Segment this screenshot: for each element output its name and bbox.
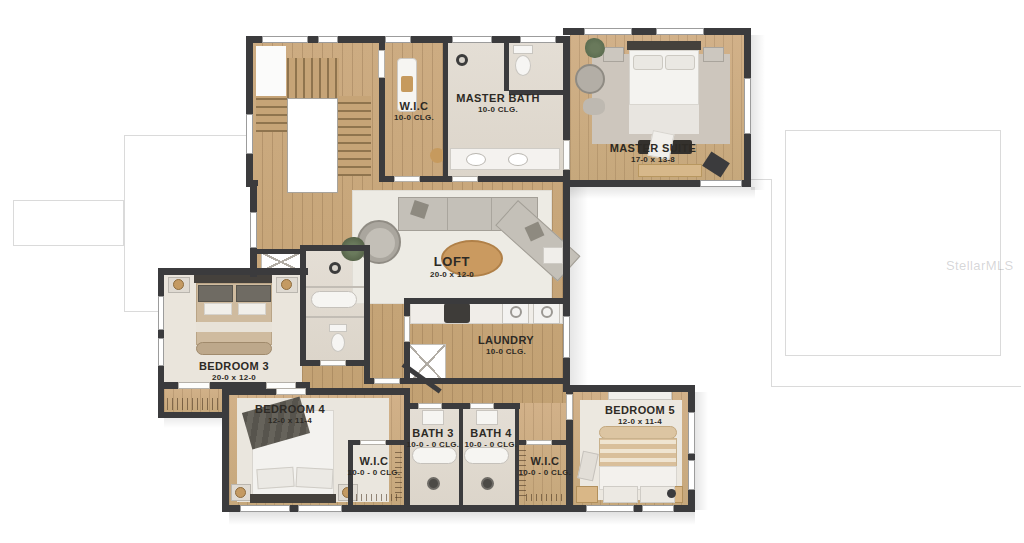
window [318,36,338,43]
room-label-laundry: LAUNDRY 10-0 CLG. [478,334,534,356]
stairs-icon [338,96,371,176]
room-dims: 10-0 - 0 CLG. [519,468,572,477]
window [586,505,634,512]
bed-blanket [629,104,699,134]
window [246,114,253,154]
pillow [296,467,334,489]
door [563,140,570,170]
sink-icon [422,410,444,425]
closet-rod [356,494,400,501]
window [700,180,742,187]
sink-icon [466,153,486,166]
toilet-icon [481,477,494,490]
room-dims: 10-0 CLG. [478,347,534,356]
footprint-outline-right-box [785,130,1001,356]
closet-rod [526,494,564,501]
footprint-outline-right-v [771,179,772,387]
washer-door [510,306,522,318]
door [374,378,400,384]
door [566,394,573,420]
sink-icon [508,153,528,166]
door [452,176,478,182]
window [452,36,492,43]
shadow [570,187,588,387]
room-name: BATH 4 [465,427,518,439]
armchair-icon [575,64,605,94]
room-dims: 10-0 CLG. [456,105,540,114]
window [563,316,570,358]
pillow [198,285,233,302]
room-label-loft: LOFT 20-0 x 12-0 [430,254,474,279]
room-name: MASTER SUITE [610,142,697,154]
room-dims: 12-0 x 11-4 [255,416,325,425]
lamp-icon [281,279,292,290]
room-dims: 20-0 x 12-0 [430,270,474,279]
wall [158,268,308,275]
bathtub-icon [311,291,357,308]
window [158,296,164,330]
stairs-icon [287,58,339,98]
shadow [695,392,708,510]
pillow [256,467,294,490]
wall [222,388,410,395]
shower-drain-icon [456,54,468,66]
room-dims: 10-0 - 0 CLG. [465,440,518,449]
toilet-icon [331,333,345,352]
room-dims: 20-0 x 12-0 [199,373,269,382]
wall [459,406,463,506]
window [250,212,257,248]
dryer-door [541,306,553,318]
door [320,360,346,366]
room-label-master-wic: W.I.C 10-0 CLG. [394,100,434,122]
ottoman [583,98,605,115]
wall [300,245,306,366]
wall [443,43,448,182]
shadow [751,35,765,190]
room-name: LOFT [430,254,474,269]
stairwell-void [287,98,338,193]
plant-icon [585,38,605,58]
window [240,505,290,512]
toilet-icon [329,324,347,332]
bathtub-icon [412,447,457,464]
room-label-wic-bed5: W.I.C 10-0 - 0 CLG. [519,455,572,477]
wall [158,412,228,418]
room-name: BEDROOM 5 [605,404,675,416]
sink-icon [476,410,498,425]
wall [504,43,509,91]
toilet-icon [513,45,533,54]
nightstand [576,486,598,503]
bathtub-icon [464,447,509,464]
closet-tray [401,76,413,92]
door [526,440,552,445]
door [470,403,494,409]
window [520,36,556,43]
wall [563,385,695,392]
wall [300,245,370,251]
pillow [633,55,663,70]
bed-headboard [627,41,701,50]
laundry-sink-icon [444,303,470,323]
window [298,505,342,512]
room-name: BEDROOM 3 [199,360,269,372]
stair-landing [256,46,286,96]
closet-rod [167,398,223,410]
room-name: LAUNDRY [478,334,534,346]
window [584,28,632,35]
bed-headboard [194,274,272,283]
room-dims: 12-0 x 11-4 [605,417,675,426]
bed-blanket [599,438,677,468]
door [378,50,385,78]
wall [257,249,304,254]
bed-roll [196,342,272,355]
room-name: W.I.C [394,100,434,112]
pillow [238,303,266,315]
shadow [229,512,695,525]
room-name: W.I.C [519,455,572,467]
toilet-icon [515,55,531,76]
door [404,316,410,342]
room-dims: 17-0 x 13-8 [610,155,697,164]
room-label-master-bath: MASTER BATH 10-0 CLG. [456,92,540,114]
nightstand [703,47,724,62]
watermark: StellarMLS [946,258,1014,273]
footprint-outline-left-small [13,200,124,246]
pillow [204,303,232,315]
dresser [638,164,702,177]
room-name: MASTER BATH [456,92,540,104]
wall [222,388,229,512]
window [656,28,704,35]
shadow [565,187,755,199]
room-name: BATH 3 [407,427,460,439]
door [394,176,420,182]
window [688,460,695,490]
room-label-master-suite: MASTER SUITE 17-0 x 13-8 [610,142,697,164]
room-label-wic-bed4: W.I.C 10-0 - 0 CLG. [348,455,401,477]
room-dims: 10-0 CLG. [394,113,434,122]
window [642,505,674,512]
pillow [603,486,638,503]
wall [246,180,258,186]
shower-drain-icon [329,262,341,274]
divider [306,316,364,318]
window [744,78,751,134]
divider [306,286,364,288]
window [688,412,695,454]
room-dims: 10-0 - 0 CLG. [348,468,401,477]
room-name: W.I.C [348,455,401,467]
door [276,388,306,395]
shadow [164,418,228,428]
room-label-bedroom3: BEDROOM 3 20-0 x 12-0 [199,360,269,382]
door [360,440,386,445]
bed-fold [196,322,272,332]
lamp-icon [173,279,184,290]
room-name: BEDROOM 4 [255,403,325,415]
room-dims: 10-0 - 0 CLG. [407,440,460,449]
floor-plan: W.I.C 10-0 CLG. MASTER BATH 10-0 CLG. MA… [0,0,1024,543]
footprint-outline-right-b [771,386,1021,387]
room-label-bedroom5: BEDROOM 5 12-0 x 11-4 [605,404,675,426]
pillow [665,55,695,70]
room-label-bath3: BATH 3 10-0 - 0 CLG. [407,427,460,449]
side-table [543,247,563,264]
stairs-icon [256,96,287,132]
window [385,36,411,43]
room-label-bath4: BATH 4 10-0 - 0 CLG. [465,427,518,449]
window [262,36,308,43]
toilet-icon [427,477,440,490]
bed-headboard [250,494,336,503]
wall [246,36,253,187]
door [178,382,210,389]
wall [404,298,565,304]
wall [370,378,570,384]
lamp-icon [235,487,246,498]
pillow [236,285,271,302]
room-label-bedroom4: BEDROOM 4 12-0 x 11-4 [255,403,325,425]
window [158,338,164,366]
door [418,403,442,409]
lamp-icon [667,489,676,498]
nightstand [603,47,624,62]
